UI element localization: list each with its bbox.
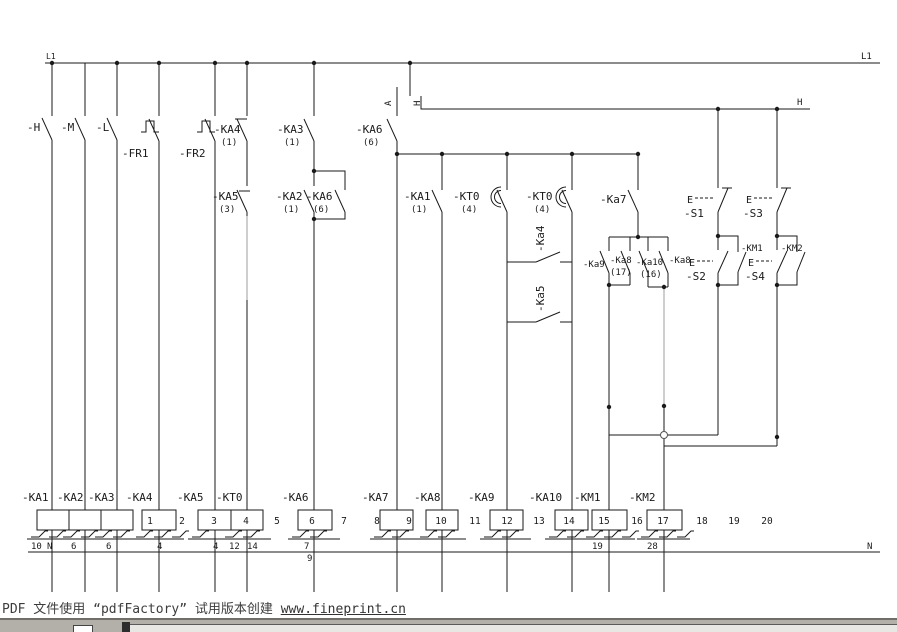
ref-6b: 6 xyxy=(106,542,111,552)
ref-mark xyxy=(604,531,621,537)
ref-mark xyxy=(154,531,171,537)
coil-ka6-box xyxy=(298,510,332,530)
coil-ka8: -KA8 xyxy=(414,491,466,592)
column-number-18: 18 xyxy=(696,516,708,527)
ref-4b: 4 xyxy=(213,542,218,552)
ref-mark xyxy=(420,531,437,537)
junction-dot xyxy=(505,152,509,156)
contact-ka6-parallel-label: -KA6 xyxy=(306,190,333,203)
wire-jump-circle xyxy=(661,432,668,439)
pushbutton-s3-actuator: E xyxy=(746,195,752,206)
junction-dot xyxy=(662,404,666,408)
ref-mark xyxy=(549,531,566,537)
branch-km-feed: -Ka7 -Ka9 -Ka8 (17) -Ka10 (16) -Ka8 xyxy=(583,154,691,287)
column-number-20: 20 xyxy=(761,516,773,527)
column-number-17: 17 xyxy=(657,516,668,527)
coil-ka10: -KA10 xyxy=(529,491,596,592)
taskbar-sunken-strip xyxy=(130,624,897,632)
pushbutton-s2-actuator: E xyxy=(689,258,695,269)
coil-ka3-label: -KA3 xyxy=(88,491,115,504)
coil-ka4-label: -KA4 xyxy=(126,491,153,504)
pushbutton-s2-label: -S2 xyxy=(686,270,706,283)
coil-ka10-label: -KA10 xyxy=(529,491,562,504)
contact-ka9-label: -Ka9 xyxy=(583,260,605,270)
coil-km1-label: -KM1 xyxy=(574,491,601,504)
ref-9: 9 xyxy=(307,554,312,564)
contact-ka1-label: -KA1 xyxy=(404,190,431,203)
pushbutton-s1-label: -S1 xyxy=(684,207,704,220)
ref-mark xyxy=(63,531,80,537)
contact-ka4-label: -KA4 xyxy=(214,123,241,136)
coil-ka2: -KA2 xyxy=(57,491,109,592)
column-number-13: 13 xyxy=(533,516,544,527)
junction-dot xyxy=(775,107,779,111)
contact-ka8a-ref: (17) xyxy=(610,268,632,278)
ref-4a: 4 xyxy=(157,542,162,552)
coil-ka6-label: -KA6 xyxy=(282,491,309,504)
ref-28: 28 xyxy=(647,542,658,552)
column-number-7: 7 xyxy=(341,516,347,527)
ref-mark xyxy=(438,531,455,537)
contact-kt0a-label: -KT0 xyxy=(453,190,480,203)
contact-km2-aux-label: -KM2 xyxy=(781,244,803,254)
contact-ka3-label: -KA3 xyxy=(277,123,304,136)
column-number-19: 19 xyxy=(728,516,740,527)
ref-mark xyxy=(310,531,327,537)
coil-ka7: -KA7 xyxy=(362,491,421,592)
coil-km1: -KM1 xyxy=(574,491,639,592)
taskbar-small-white-box[interactable] xyxy=(73,625,93,632)
power-buses: L1 L1 A H H N N xyxy=(28,52,880,552)
column-number-1: 1 xyxy=(147,516,153,527)
contact-ka1-ref: (1) xyxy=(411,205,427,215)
junction-dot xyxy=(408,61,412,65)
pushbutton-s4-label: -S4 xyxy=(745,270,765,283)
contact-h-label: -H xyxy=(27,121,40,134)
coil-ka2-box xyxy=(69,510,101,530)
fineprint-link[interactable]: www.fineprint.cn xyxy=(281,602,406,617)
ref-mark xyxy=(95,531,112,537)
junction-dot xyxy=(50,61,54,65)
junction-dot xyxy=(716,107,720,111)
contact-ka6-top-label: -KA6 xyxy=(356,123,383,136)
coil-ka7-label: -KA7 xyxy=(362,491,389,504)
column-number-11: 11 xyxy=(469,516,481,527)
contact-ka4-ref: (1) xyxy=(221,138,237,148)
coil-ka5-label: -KA5 xyxy=(177,491,204,504)
ref-mark xyxy=(659,531,676,537)
l1-label-left: L1 xyxy=(46,52,56,61)
ref-mark xyxy=(502,531,519,537)
pdf-page: L1 L1 A H H N N -H -M -L -FR1 -FR2 -K xyxy=(0,0,897,632)
contact-ka2-label: -KA2 xyxy=(276,190,303,203)
coil-ka9-label: -KA9 xyxy=(468,491,495,504)
contact-l-label: -L xyxy=(96,121,110,134)
branch-s3-s4: E -S3 E -S4 -KM2 xyxy=(743,109,805,446)
cross-contact-ka5: -Ka5 xyxy=(507,286,572,323)
branch-ka6-feed: -KA3 (1) -KA2 (1) -KA6 (6) xyxy=(276,63,345,510)
ref-mark xyxy=(243,531,260,537)
bottom-window-edge xyxy=(0,618,897,632)
junction-dot xyxy=(716,283,720,287)
ref-mark xyxy=(192,531,209,537)
branch-ka9-feed: -KT0 (4) xyxy=(453,154,507,510)
junction-dot xyxy=(115,61,119,65)
contact-ka5-label: -KA5 xyxy=(212,190,239,203)
watermark-text: PDF 文件使用 “pdfFactory” 试用版本创建 xyxy=(2,602,281,617)
branch-ka10-feed: -KT0 (4) xyxy=(526,154,572,510)
column-number-15: 15 xyxy=(598,516,609,527)
ref-mark xyxy=(292,531,309,537)
junction-dot xyxy=(775,283,779,287)
column-number-4: 4 xyxy=(243,516,249,527)
ref-12: 12 xyxy=(229,542,240,552)
contact-ka8a-label: -Ka8 xyxy=(610,256,632,266)
branch-h: -H xyxy=(27,63,52,510)
junction-dot xyxy=(245,61,249,65)
ref-mark xyxy=(31,531,48,537)
coil-km2: -KM2 xyxy=(629,491,694,592)
junction-dot xyxy=(607,283,611,287)
coil-ka3-box xyxy=(101,510,133,530)
contact-ka6-parallel-ref: (6) xyxy=(313,205,329,215)
junction-dot xyxy=(775,435,779,439)
h-bus-line xyxy=(421,96,810,109)
branch-fr2: -FR2 xyxy=(179,63,215,510)
branch-fr1: -FR1 xyxy=(122,63,159,510)
contact-ka8b-label: -Ka8 xyxy=(669,256,691,266)
contact-fr1-label: -FR1 xyxy=(122,147,149,160)
ref-mark xyxy=(136,531,153,537)
junction-dot xyxy=(157,61,161,65)
junction-dot xyxy=(440,152,444,156)
column-number-6: 6 xyxy=(309,516,315,527)
junction-dot xyxy=(607,405,611,409)
l1-label-right: L1 xyxy=(861,52,872,62)
ref-mark xyxy=(622,531,639,537)
contact-ka6-top-ref: (6) xyxy=(363,138,379,148)
coil-kt0: -KT0 xyxy=(216,491,271,592)
coil-ka3: -KA3 xyxy=(88,491,141,592)
taskbar-dark-tick[interactable] xyxy=(122,622,130,632)
contact-kt0b-ref: (4) xyxy=(534,205,550,215)
contact-km1-aux-label: -KM1 xyxy=(741,244,763,254)
contact-ka10-ref: (16) xyxy=(640,270,662,280)
km-coil-lines xyxy=(609,285,777,510)
cross-ka4-label: -Ka4 xyxy=(534,225,547,252)
column-number-5: 5 xyxy=(274,516,280,527)
branch-ka8-feed: -KA1 (1) xyxy=(404,154,442,510)
branch-kt0-feed: -KA4 (1) -KA5 (3) xyxy=(212,63,250,510)
coil-ka1-box xyxy=(37,510,69,530)
contact-ka5-ref: (3) xyxy=(219,205,235,215)
pushbutton-s4-actuator: E xyxy=(748,258,754,269)
ref-7: 7 xyxy=(304,542,309,552)
branch-l: -L xyxy=(96,63,117,510)
ref-mark xyxy=(586,531,603,537)
junction-dot xyxy=(636,152,640,156)
junction-dot xyxy=(395,152,399,156)
column-number-10: 10 xyxy=(435,516,447,527)
ref-mark xyxy=(113,531,130,537)
column-number-14: 14 xyxy=(563,516,575,527)
junction-dot xyxy=(312,61,316,65)
branch-ka7-feed: -KA6 (6) xyxy=(356,119,397,510)
contact-m-label: -M xyxy=(61,121,75,134)
contact-kt0b-label: -KT0 xyxy=(526,190,553,203)
contact-fr2-label: -FR2 xyxy=(179,147,206,160)
h-bus-label: H xyxy=(797,98,802,108)
pushbutton-s3-label: -S3 xyxy=(743,207,763,220)
coil-ka8-label: -KA8 xyxy=(414,491,441,504)
coil-km2-label: -KM2 xyxy=(629,491,656,504)
coil-kt0-label: -KT0 xyxy=(216,491,243,504)
cross-ka5-label: -Ka5 xyxy=(534,286,547,313)
cross-reference-numbers: 10 6 6 4 4 12 14 7 9 19 28 xyxy=(31,542,658,564)
ref-14: 14 xyxy=(247,542,258,552)
ref-mark xyxy=(567,531,584,537)
pdffactory-watermark: PDF 文件使用 “pdfFactory” 试用版本创建 www.finepri… xyxy=(2,598,895,617)
contact-ka2-ref: (1) xyxy=(283,205,299,215)
column-number-9: 9 xyxy=(406,516,412,527)
column-number-12: 12 xyxy=(501,516,512,527)
coil-ka9: -KA9 xyxy=(468,491,531,592)
coil-ka1-label: -KA1 xyxy=(22,491,49,504)
ref-mark xyxy=(172,531,189,537)
junction-dot xyxy=(775,234,779,238)
coil-ka6: -KA6 xyxy=(282,491,340,592)
junction-dot xyxy=(570,152,574,156)
junction-dot xyxy=(213,61,217,65)
relay-control-schematic: L1 L1 A H H N N -H -M -L -FR1 -FR2 -K xyxy=(0,0,897,597)
coil-ka2-label: -KA2 xyxy=(57,491,84,504)
junction-dot xyxy=(662,285,666,289)
ref-mark xyxy=(374,531,391,537)
ref-19: 19 xyxy=(592,542,603,552)
ref-mark xyxy=(677,531,694,537)
contact-ka7-label: -Ka7 xyxy=(600,193,627,206)
contact-kt0a-ref: (4) xyxy=(461,205,477,215)
column-number-2: 2 xyxy=(179,516,185,527)
junction-dot xyxy=(716,234,720,238)
junction-dot xyxy=(636,235,640,239)
junction-dot xyxy=(312,217,316,221)
column-number-16: 16 xyxy=(631,516,643,527)
ref-mark xyxy=(81,531,98,537)
contact-ka10-label: -Ka10 xyxy=(636,258,663,268)
wire-a-label: A xyxy=(384,100,394,106)
branch-m: -M xyxy=(61,63,85,510)
ref-mark xyxy=(641,531,658,537)
column-number-3: 3 xyxy=(211,516,217,527)
ref-mark xyxy=(392,531,409,537)
ref-mark xyxy=(484,531,501,537)
contact-ka3-ref: (1) xyxy=(284,138,300,148)
ref-10: 10 xyxy=(31,542,42,552)
cross-contact-ka4: -Ka4 xyxy=(507,225,572,262)
n-label-right: N xyxy=(867,542,872,552)
column-number-8: 8 xyxy=(374,516,380,527)
pushbutton-s1-actuator: E xyxy=(687,195,693,206)
ref-6a: 6 xyxy=(71,542,76,552)
ref-mark xyxy=(225,531,242,537)
junction-dot xyxy=(312,169,316,173)
